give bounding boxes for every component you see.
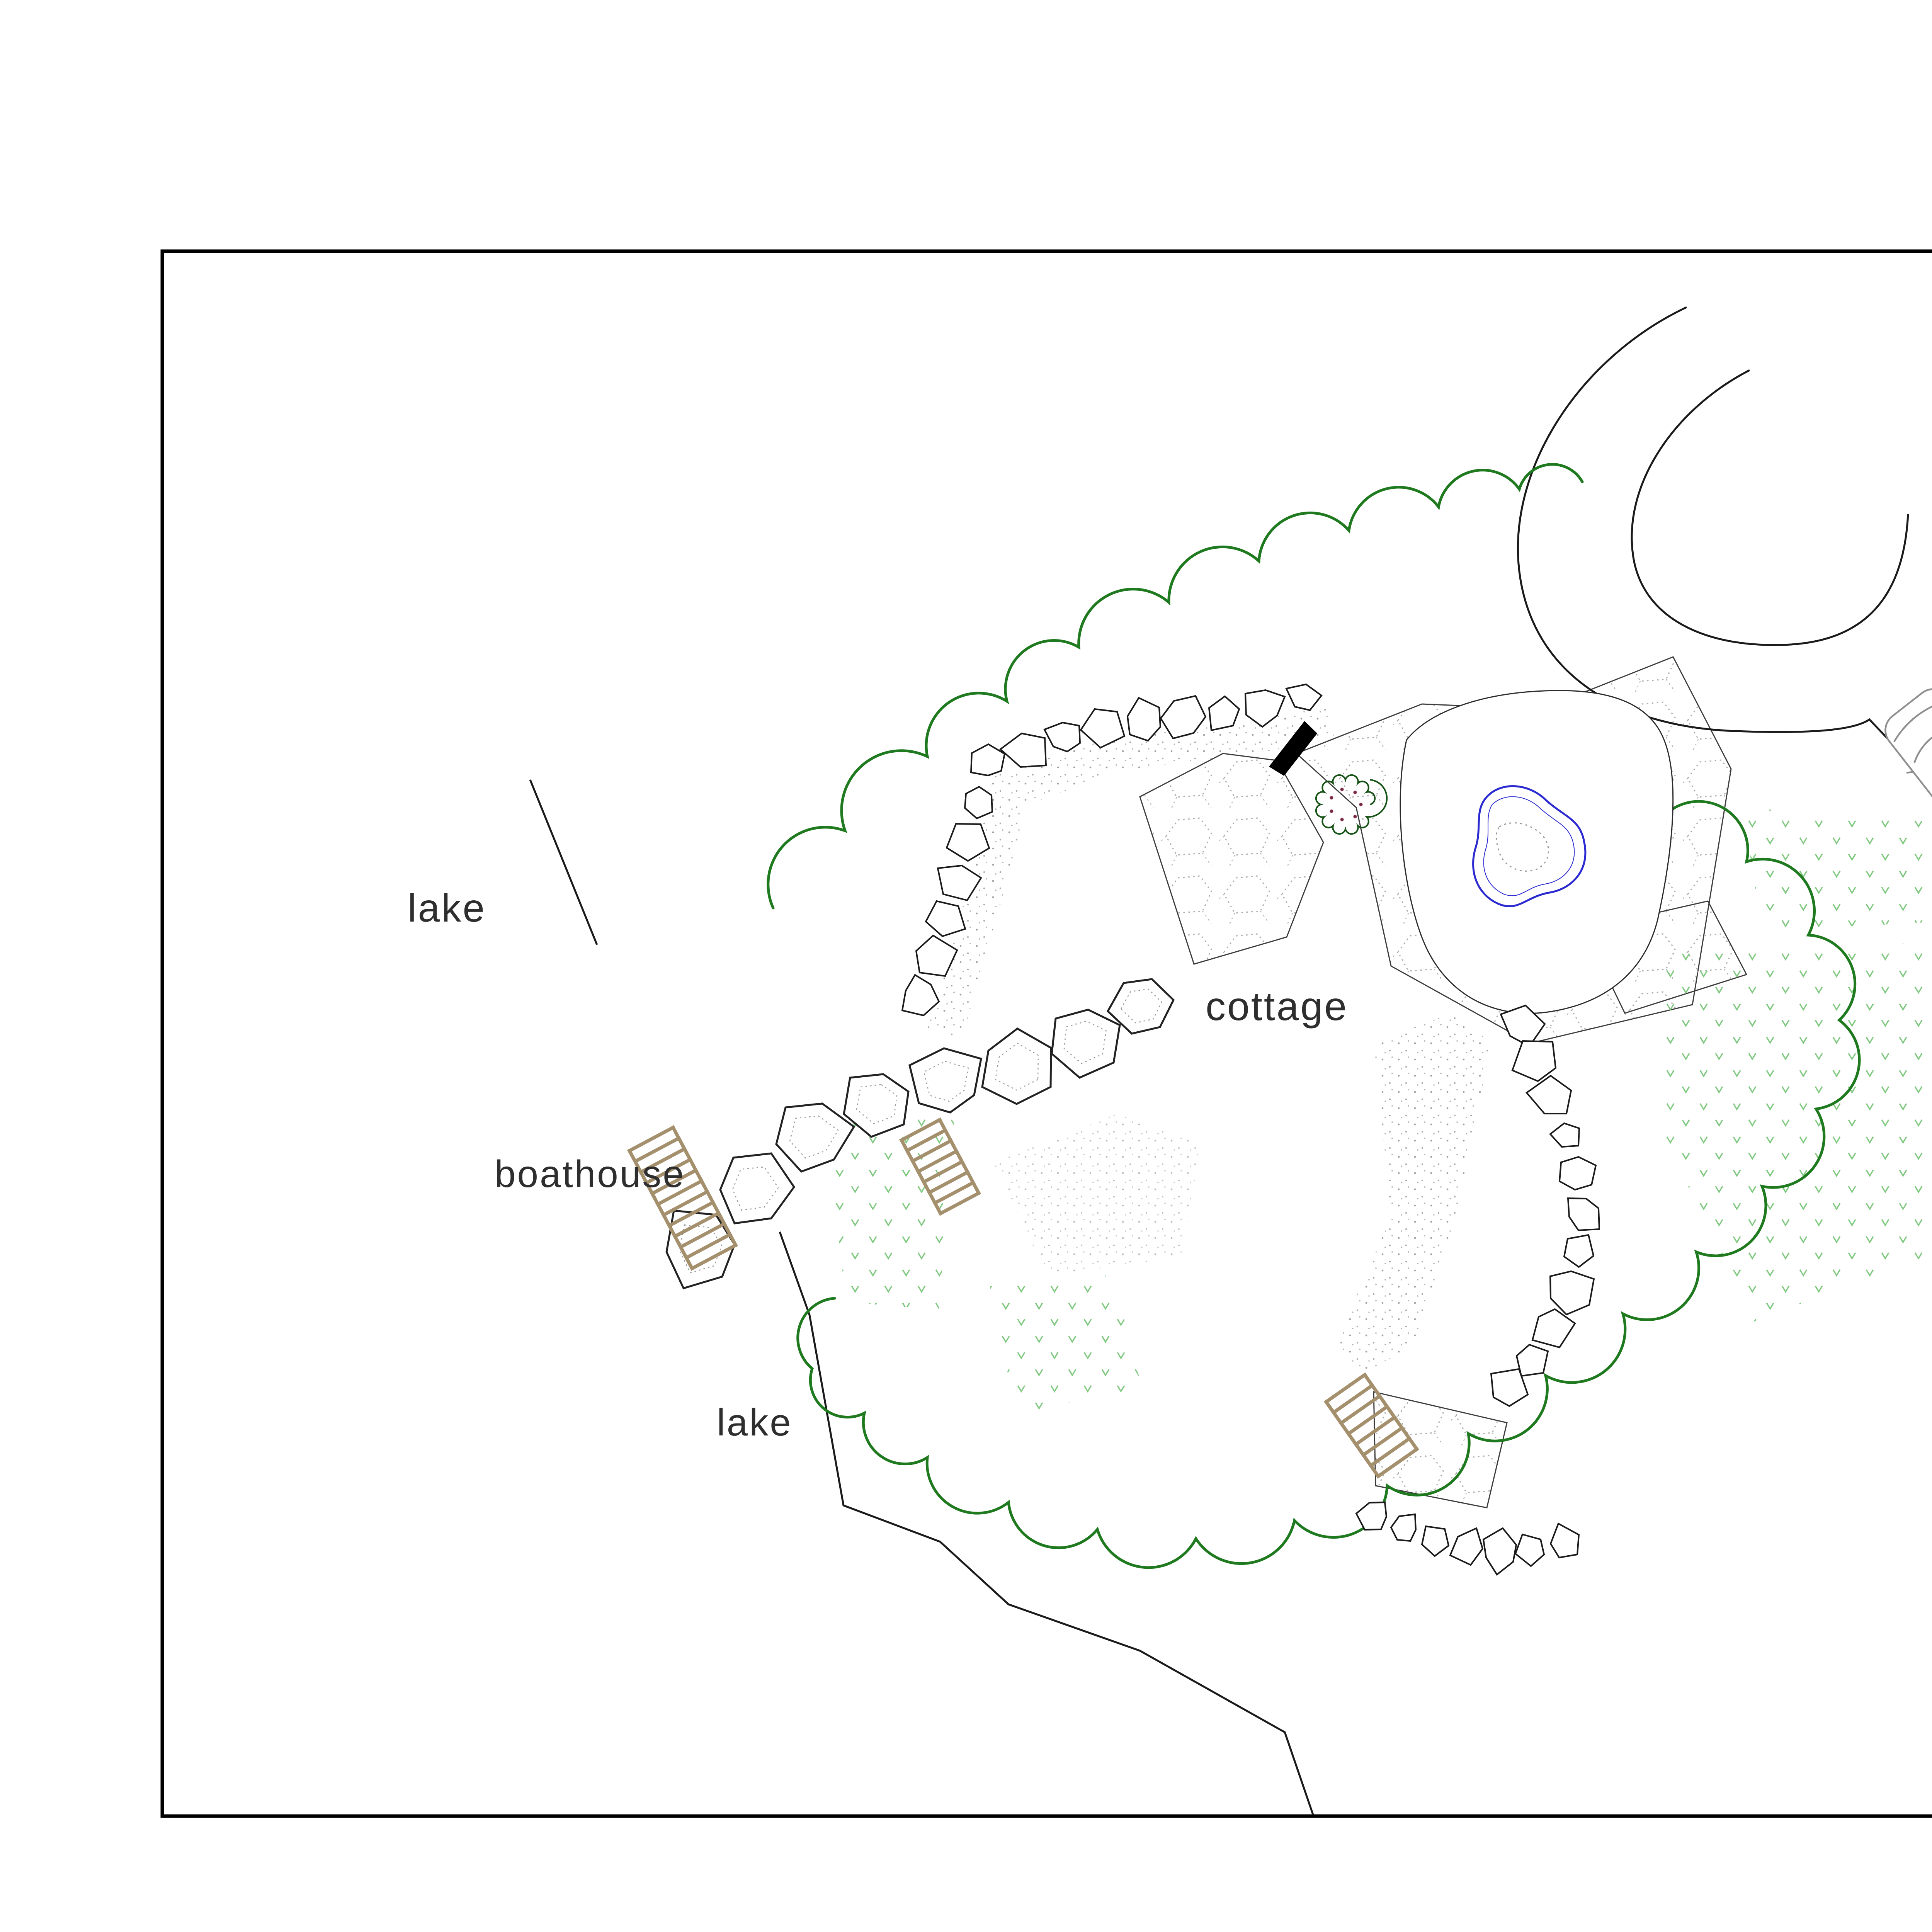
lake-label-lower: lake [717,1401,793,1444]
sheet: lake boathouse lake cottage [0,0,1932,1932]
plan-drawing-canvas: lake boathouse lake cottage [0,0,1932,1932]
boathouse-label: boathouse [495,1153,685,1195]
lake-label-upper: lake [408,886,486,930]
cottage-label: cottage [1206,984,1348,1029]
